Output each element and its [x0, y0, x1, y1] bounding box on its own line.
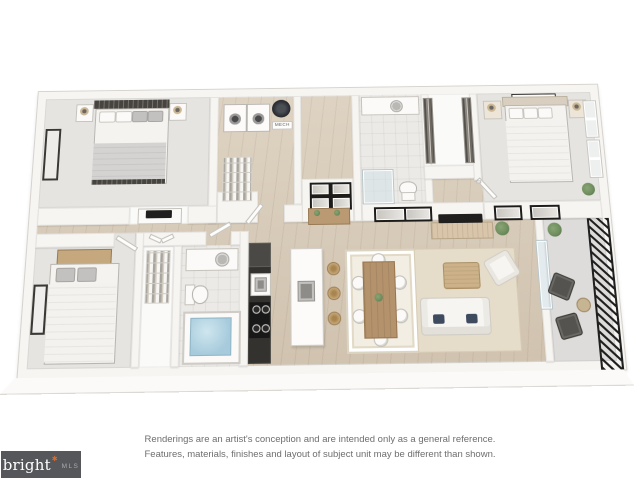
disclaimer-line-2: Features, materials, finishes and layout… [0, 448, 640, 463]
sofa-pillow [466, 314, 478, 324]
shower [363, 170, 394, 203]
door [476, 180, 481, 183]
lamp [487, 103, 496, 111]
art-frame [530, 205, 561, 220]
dryer [247, 104, 270, 132]
logo-mls-text: MLS [62, 463, 80, 470]
pillow [523, 108, 538, 119]
centerpiece [374, 293, 382, 301]
tv-console [431, 221, 494, 239]
bathtub-water [189, 317, 231, 356]
blanket [92, 143, 167, 183]
refrigerator [249, 243, 271, 268]
art-frame [310, 182, 331, 196]
pillow [55, 268, 75, 283]
vanity [185, 248, 238, 271]
sink [255, 277, 267, 292]
tv [146, 210, 172, 218]
unit-outline: MECH [18, 85, 627, 379]
washer [223, 104, 247, 132]
logo-star-icon: ✱ [52, 455, 58, 463]
balcony-table [576, 298, 592, 313]
burner [262, 324, 270, 333]
door [208, 221, 232, 238]
art-frame [331, 182, 352, 196]
pillow [537, 107, 552, 118]
sink [390, 100, 403, 112]
footboard [91, 179, 165, 185]
mech-label: MECH [272, 121, 293, 129]
plant [495, 221, 510, 235]
bar-stool [328, 312, 342, 326]
burner [262, 305, 270, 314]
coffee-table [443, 262, 481, 289]
pillow [132, 111, 148, 122]
pillow [508, 108, 523, 119]
burner [252, 305, 260, 314]
sofa-pillow [433, 314, 445, 324]
toilet-tank [401, 192, 415, 201]
linen-shelves [222, 157, 252, 202]
disclaimer-line-1: Renderings are an artist's conception an… [0, 433, 640, 448]
bar-stool [327, 262, 340, 275]
duvet [44, 283, 117, 362]
disclaimer-text: Renderings are an artist's conception an… [0, 433, 640, 462]
art-frame [374, 207, 407, 222]
bar-stool [327, 287, 341, 301]
pillow [77, 267, 97, 282]
art-frame [404, 206, 433, 221]
plant [334, 210, 340, 216]
duvet [506, 120, 572, 181]
water-heater [272, 100, 290, 118]
pillow [99, 111, 116, 122]
logo-brand-text: bright [3, 456, 51, 474]
pillow [147, 111, 163, 122]
plant [314, 210, 320, 216]
wall [293, 96, 302, 205]
lamp [572, 102, 581, 110]
closet-shelves [144, 250, 170, 304]
plant [547, 223, 562, 237]
plant [581, 183, 595, 196]
floorplan-image: MECH [0, 0, 640, 480]
floorplan-3d-render: MECH [18, 85, 627, 379]
window [583, 101, 598, 137]
art-frame [494, 205, 523, 220]
pillow [115, 111, 132, 122]
sofa [420, 297, 492, 336]
wall [35, 233, 115, 248]
brightmls-logo: bright✱MLS [1, 451, 81, 478]
tv [438, 214, 483, 224]
wall [188, 206, 217, 224]
wall [37, 207, 130, 226]
island-sink [297, 281, 315, 302]
window [587, 140, 602, 177]
